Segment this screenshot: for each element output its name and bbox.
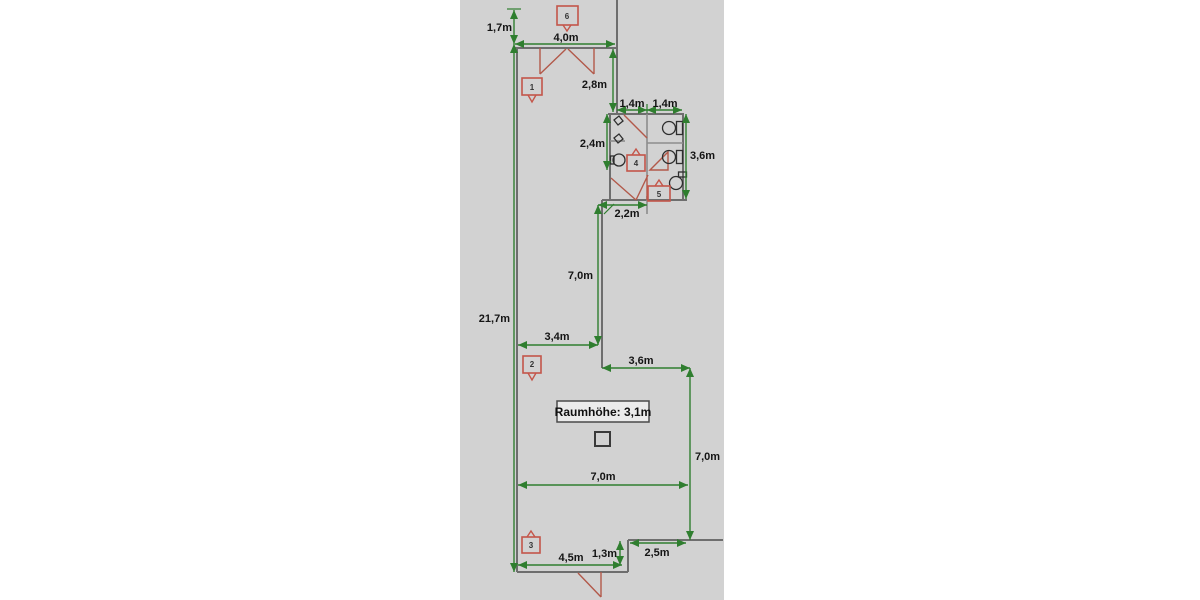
room-marker-5: 5	[648, 180, 670, 201]
toilet-tank-icon	[677, 151, 683, 164]
room-height-note: Raumhöhe: 3,1m	[555, 401, 652, 422]
dimension-label-wc-right-width: 1,4m	[652, 98, 677, 110]
room-marker-label: 6	[565, 12, 570, 21]
toilet-tank-icon	[611, 156, 615, 164]
room-marker-pointer-icon	[528, 95, 536, 102]
sink-icon	[614, 116, 623, 125]
dimension-label-recess-width: 2,5m	[644, 547, 669, 559]
dimension-label-bottom-wall-length: 4,5m	[558, 552, 583, 564]
room-marker-pointer-icon	[632, 149, 640, 155]
room-marker-pointer-icon	[655, 180, 663, 186]
wc-door-icon	[650, 152, 668, 170]
dimension-label-top-room-width: 4,0m	[553, 32, 578, 44]
room-height-note-label: Raumhöhe: 3,1m	[555, 405, 652, 419]
dimension-labels: 1,7m 4,0m 2,8m 1,4m 1,4m 2,4m 3,6m 2,2m …	[479, 22, 720, 564]
room-marker-6: 6	[557, 6, 578, 31]
room-marker-pointer-icon	[528, 373, 536, 380]
fixtures	[595, 116, 687, 446]
column-symbol	[595, 432, 610, 446]
dimension-label-corridor-length: 7,0m	[568, 270, 593, 282]
dimension-label-annex-width: 3,6m	[628, 355, 653, 367]
double-door-left-leaf-icon	[540, 48, 566, 74]
room-marker-label: 3	[529, 541, 534, 550]
dimension-label-main-room-depth: 7,0m	[695, 451, 720, 463]
page-background: 1,7m 4,0m 2,8m 1,4m 1,4m 2,4m 3,6m 2,2m …	[0, 0, 1200, 600]
toilet-tank-icon	[677, 122, 683, 135]
room-marker-label: 2	[530, 360, 535, 369]
dimension-label-corridor-width: 3,4m	[544, 331, 569, 343]
floorplan-svg: 1,7m 4,0m 2,8m 1,4m 1,4m 2,4m 3,6m 2,2m …	[460, 0, 724, 600]
room-marker-label: 5	[657, 190, 662, 199]
toilet-icon	[663, 122, 676, 135]
dimension-label-entry-offset: 1,7m	[487, 22, 512, 34]
door-swings	[540, 48, 668, 597]
room-marker-label: 1	[530, 83, 535, 92]
double-door-right-leaf-icon	[568, 48, 594, 74]
dimension-label-wc-left-depth: 2,4m	[580, 138, 605, 150]
dimension-label-wc-right-depth: 3,6m	[690, 150, 715, 162]
toilet-icon	[613, 154, 625, 166]
room-marker-label: 4	[634, 159, 639, 168]
bath-door-bottom-icon	[611, 175, 648, 200]
dimension-label-wc-left-width: 1,4m	[619, 98, 644, 110]
dimension-lines	[507, 9, 690, 572]
room-marker-4: 4	[627, 149, 645, 171]
dimension-label-main-room-width: 7,0m	[590, 471, 615, 483]
room-marker-2: 2	[523, 356, 541, 380]
bath-door-top-icon	[624, 115, 647, 138]
toilet-icon	[663, 151, 676, 164]
walls	[515, 0, 723, 572]
dimension-label-building-length: 21,7m	[479, 313, 510, 325]
toilet-icon	[670, 177, 683, 190]
floorplan-canvas: 1,7m 4,0m 2,8m 1,4m 1,4m 2,4m 3,6m 2,2m …	[460, 0, 724, 600]
room-marker-1: 1	[522, 78, 542, 102]
room-marker-pointer-icon	[563, 25, 571, 31]
dimension-label-top-room-depth: 2,8m	[582, 79, 607, 91]
room-marker-pointer-icon	[527, 531, 535, 537]
entrance-door-icon	[578, 572, 601, 597]
dimension-label-recess-depth: 1,3m	[592, 548, 617, 560]
room-marker-3: 3	[522, 531, 540, 553]
dimension-label-passage-width: 2,2m	[614, 208, 639, 220]
